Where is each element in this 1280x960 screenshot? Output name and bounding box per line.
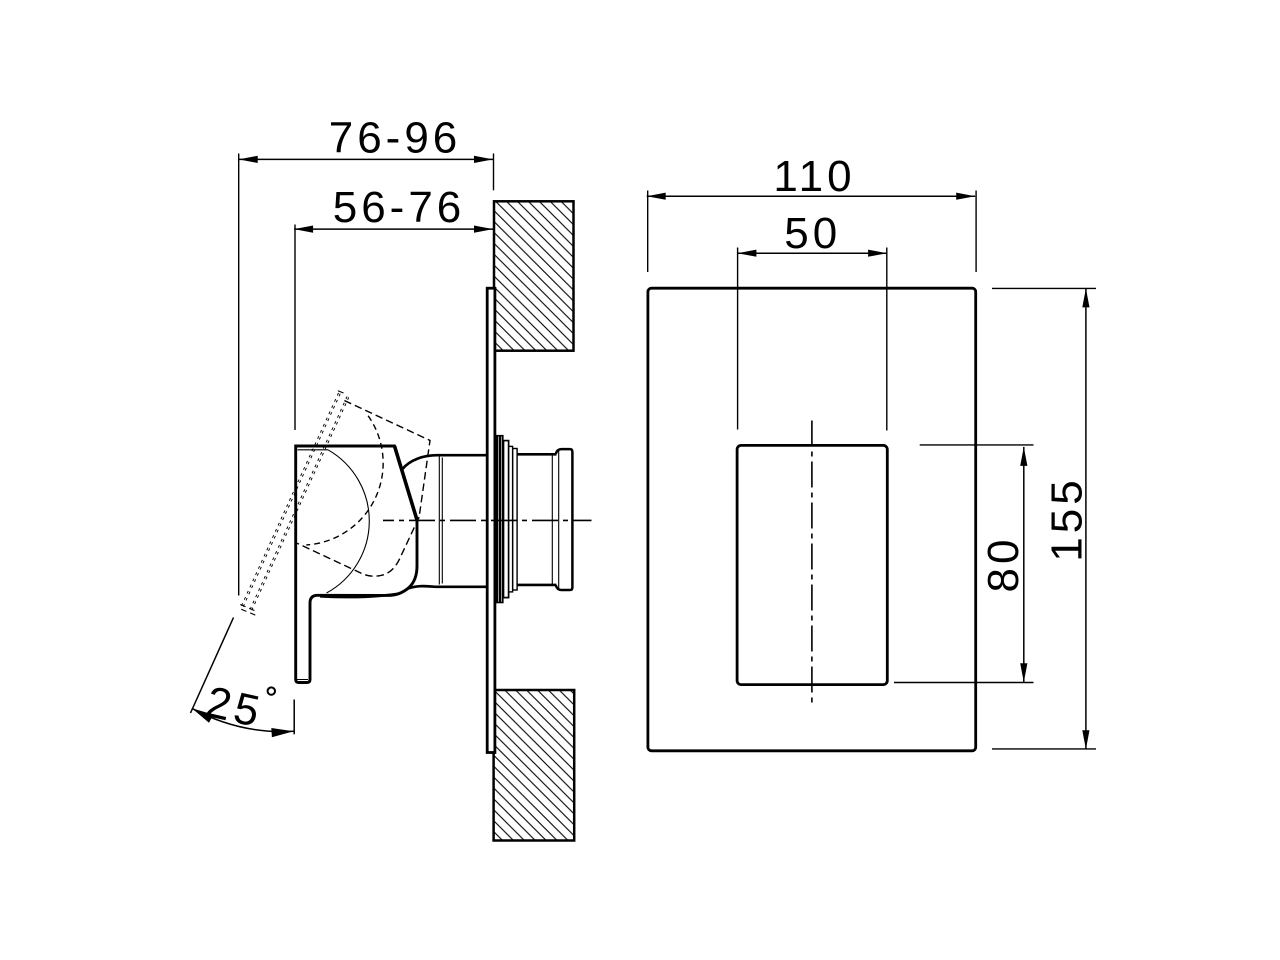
svg-text:155: 155 xyxy=(1043,476,1092,561)
svg-text:76-96: 76-96 xyxy=(329,114,462,163)
svg-text:110: 110 xyxy=(773,152,855,201)
svg-text:80: 80 xyxy=(979,536,1028,593)
svg-text:56-76: 56-76 xyxy=(333,183,466,232)
svg-text:50: 50 xyxy=(784,209,841,258)
